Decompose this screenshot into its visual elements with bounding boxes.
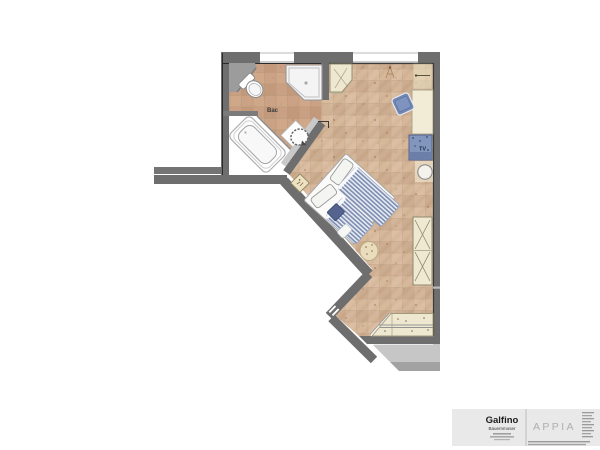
svg-text:Bac: Bac [267, 108, 279, 114]
svg-text:TV: TV [419, 147, 426, 153]
svg-text:Bauernmoser: Bauernmoser [488, 426, 516, 431]
svg-text:Galfino: Galfino [486, 415, 519, 426]
svg-text:APPIA: APPIA [533, 421, 576, 433]
